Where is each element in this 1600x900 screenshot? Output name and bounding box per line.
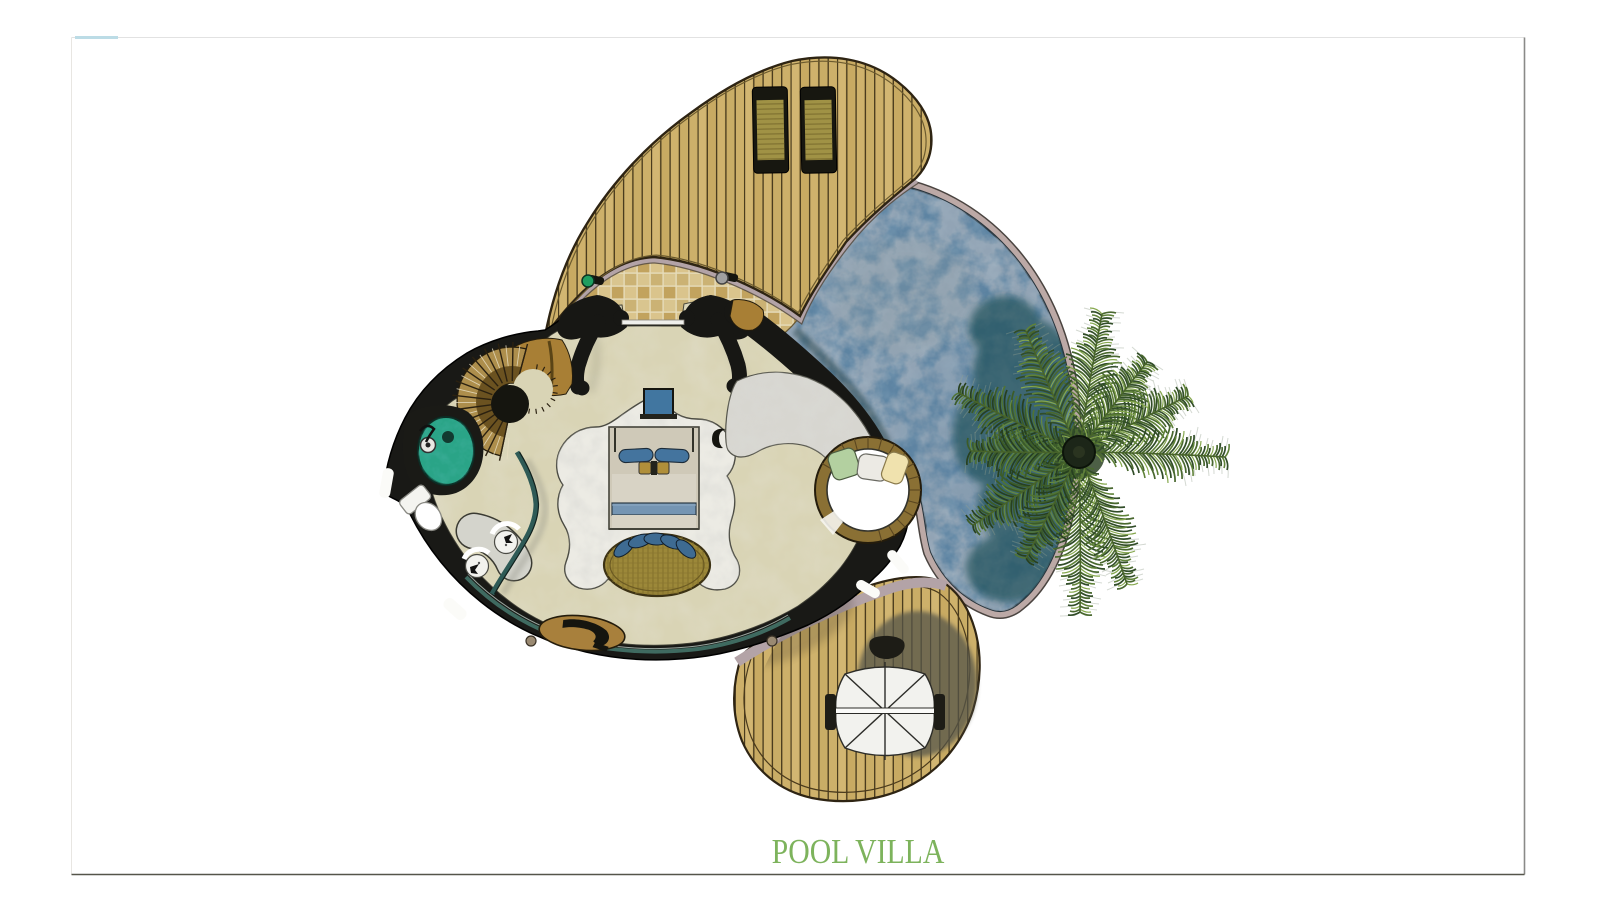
svg-text:POOL VILLA: POOL VILLA bbox=[772, 833, 945, 872]
